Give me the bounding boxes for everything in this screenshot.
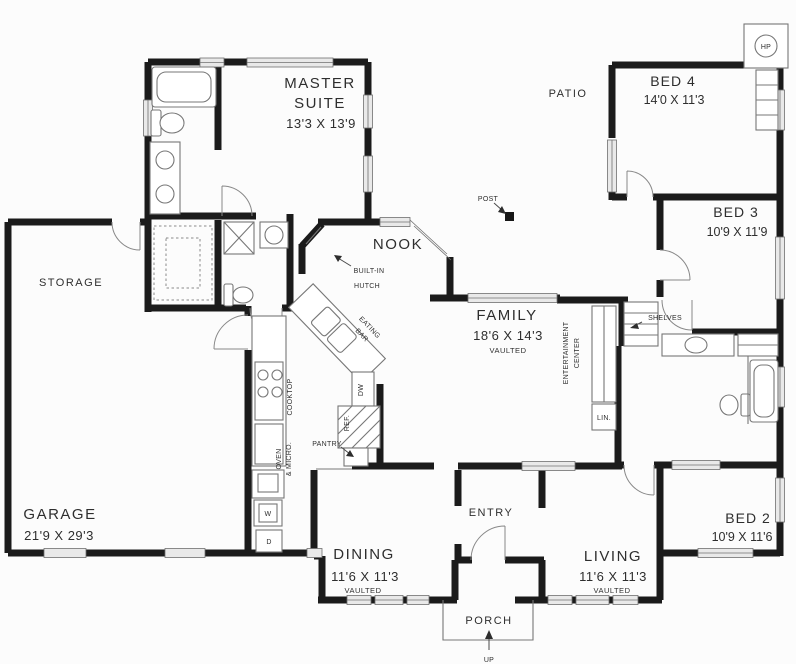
room-label-storage: STORAGE <box>39 277 103 289</box>
window <box>200 58 224 67</box>
window <box>576 596 609 605</box>
entertainment-center-cabinet <box>592 306 616 402</box>
floor-plan: MASTER SUITE 13'3 X 13'9 PATIO HP BED 4 … <box>0 0 796 664</box>
room-note-family: VAULTED <box>490 346 527 355</box>
post-label: POST <box>478 196 499 203</box>
hall-bathtub <box>748 356 778 424</box>
room-label-family: FAMILY <box>476 307 537 324</box>
dishwasher-label: DW <box>358 384 365 396</box>
window <box>375 596 403 605</box>
room-dims-garage: 21'9 X 29'3 <box>24 528 94 543</box>
garage-door <box>165 549 205 558</box>
entertainment-center-label: CENTER <box>574 338 581 369</box>
window <box>776 478 785 522</box>
window <box>468 294 557 303</box>
room-note-living: VAULTED <box>594 586 631 595</box>
window <box>548 596 572 605</box>
room-dims-living: 11'6 X 11'3 <box>579 569 647 584</box>
post-arrow <box>494 203 506 214</box>
room-label-bed4: BED 4 <box>650 73 695 89</box>
floor-plan-page: MASTER SUITE 13'3 X 13'9 PATIO HP BED 4 … <box>0 0 796 664</box>
walls <box>8 62 780 600</box>
room-dims-dining: 11'6 X 11'3 <box>331 569 399 584</box>
hutch-arrow <box>334 255 351 266</box>
master-toilet <box>151 110 184 136</box>
shower <box>224 222 254 254</box>
washer-label: W <box>265 511 272 518</box>
room-label-garage: GARAGE <box>23 506 96 523</box>
room-label-entry: ENTRY <box>469 507 514 519</box>
hall-bath-closet <box>738 334 778 356</box>
window <box>364 156 373 192</box>
room-dims-master-suite: 13'3 X 13'9 <box>286 116 356 131</box>
up-label: UP <box>484 657 494 664</box>
patio-post <box>505 212 514 221</box>
garage-door <box>44 549 86 558</box>
dryer-label: D <box>266 539 271 546</box>
oven-label: & MICRO. <box>286 442 293 476</box>
cooktop <box>255 362 283 420</box>
window <box>522 462 575 471</box>
windows <box>44 58 785 605</box>
window <box>247 58 333 67</box>
shelves-closet <box>624 302 658 346</box>
room-label-dining: DINING <box>333 546 395 563</box>
room-label-master-suite: SUITE <box>294 95 346 112</box>
room-dims-family: 18'6 X 14'3 <box>473 328 543 343</box>
window <box>347 596 371 605</box>
room-label-bed3: BED 3 <box>713 204 758 220</box>
pantry-label: PANTRY <box>312 441 342 448</box>
bed4-closet <box>756 70 778 130</box>
room-label-patio: PATIO <box>549 88 588 100</box>
hall-bath-toilet <box>720 394 750 416</box>
room-note-dining: VAULTED <box>345 586 382 595</box>
shelves-label: SHELVES <box>648 315 682 322</box>
room-dims-bed4: 14'0 X 11'3 <box>644 93 705 107</box>
oven-label: OVEN <box>276 448 283 469</box>
window <box>380 218 410 227</box>
room-dims-bed3: 10'9 X 11'9 <box>707 225 768 239</box>
room-dims-bed2: 10'9 X 11'6 <box>712 530 773 544</box>
furnace <box>252 470 284 498</box>
room-label-master-suite: MASTER <box>284 75 356 92</box>
hutch-label: BUILT-IN <box>354 268 385 275</box>
room-label-nook: NOOK <box>373 236 423 253</box>
window <box>698 549 753 558</box>
window <box>672 461 720 470</box>
room-label-living: LIVING <box>584 548 642 565</box>
bath-toilet <box>224 284 253 306</box>
door-threshold <box>307 549 322 558</box>
hp-label: HP <box>761 44 771 51</box>
bath-sink <box>260 222 288 248</box>
window <box>608 140 617 192</box>
linen-label: LIN. <box>597 415 611 422</box>
hutch-label: HUTCH <box>354 283 380 290</box>
pantry-cabinet <box>344 448 368 466</box>
hall-bath-vanity <box>662 334 734 356</box>
master-bathtub <box>152 67 216 107</box>
entertainment-center-label: ENTERTAINMENT <box>563 321 570 384</box>
window <box>364 95 373 128</box>
room-label-bed2: BED 2 <box>725 510 770 526</box>
cooktop-label: COOKTOP <box>287 378 294 415</box>
window <box>776 237 785 299</box>
window <box>613 596 638 605</box>
master-vanity <box>150 142 180 214</box>
refrigerator-label: REF. <box>344 415 351 431</box>
walk-in-closet <box>154 226 212 300</box>
window <box>407 596 429 605</box>
room-label-porch: PORCH <box>465 615 512 627</box>
